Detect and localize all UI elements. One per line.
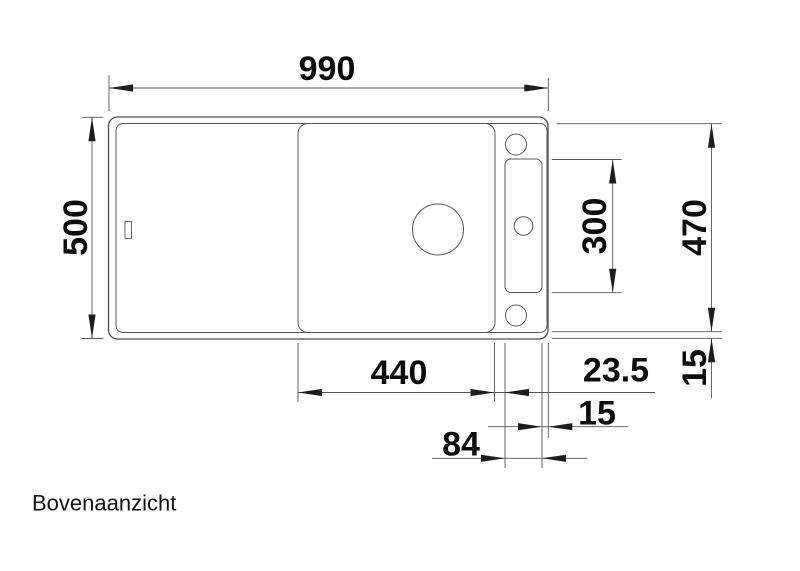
dim-ledge-cutout-length-label: 300 (576, 198, 614, 255)
dim-rim-right: 15 (676, 338, 715, 398)
dim-total-width: 990 (109, 50, 548, 111)
sink-inner-rim (116, 124, 547, 333)
sink-top-view-diagram: 990 500 300 470 15 (0, 0, 800, 571)
dim-ledge-width: 84 (432, 426, 587, 464)
view-label: Bovenaanzicht (32, 491, 176, 516)
dim-bowl-to-ledge-gap-label: 23.5 (583, 352, 649, 390)
tap-hole-middle (514, 217, 533, 236)
dim-total-depth-label: 500 (57, 199, 95, 256)
dim-bowl-width: 440 23.5 (298, 352, 655, 397)
overflow-slot (125, 222, 132, 239)
dim-ledge-width-label: 84 (442, 426, 480, 464)
drain-hole (413, 204, 464, 255)
dim-total-depth: 500 (57, 117, 103, 338)
tap-hole-top (506, 134, 527, 155)
dim-bowl-width-label: 440 (371, 354, 428, 392)
dim-ledge-to-edge-label: 15 (578, 395, 616, 433)
technical-drawing-page: 990 500 300 470 15 (0, 0, 800, 571)
tap-ledge-panel (505, 159, 542, 293)
tap-hole-bottom (506, 305, 527, 326)
dim-ledge-to-edge: 15 (488, 395, 628, 433)
main-bowl (298, 124, 495, 333)
dim-inner-depth-label: 470 (676, 199, 714, 256)
sink-outline (109, 117, 549, 339)
dim-ledge-cutout-length: 300 (552, 160, 622, 293)
dim-rim-right-label: 15 (676, 349, 714, 387)
sink-outer-edge (109, 117, 549, 339)
dim-total-width-label: 990 (299, 50, 356, 88)
